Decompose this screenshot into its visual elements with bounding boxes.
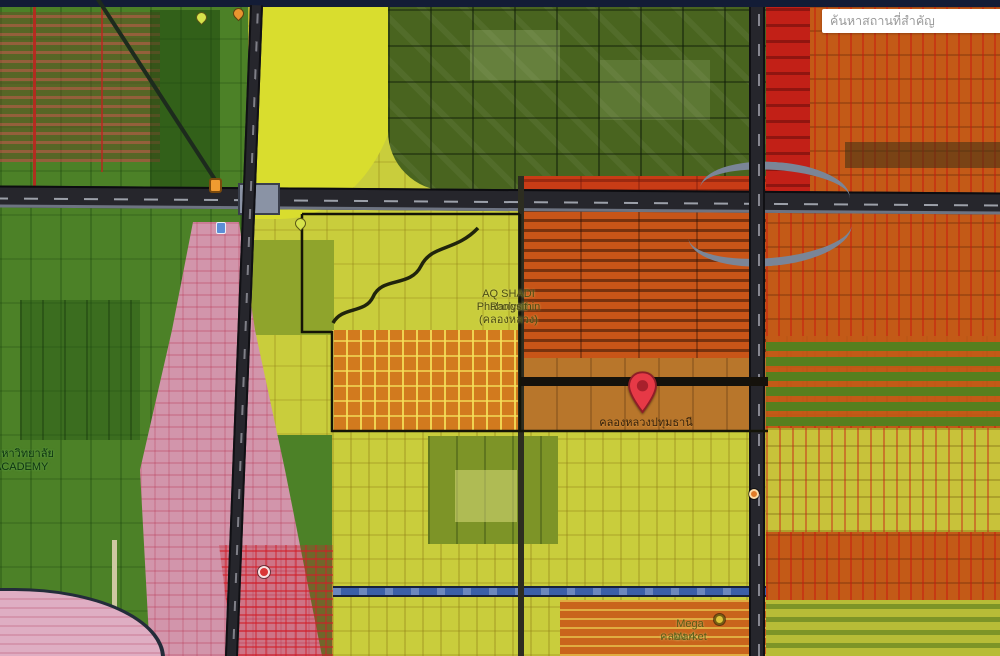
search-input[interactable] xyxy=(822,9,1000,33)
window-top-strip xyxy=(0,0,1000,7)
right-green-rows xyxy=(766,336,1000,426)
orange-subdivision-grid xyxy=(332,330,522,432)
pin-label: คลองหลวงปทุมธานี xyxy=(566,413,726,431)
road-vertical-mid xyxy=(518,176,524,656)
poi-dot-red-icon[interactable] xyxy=(258,566,270,578)
mega-market-label: Mega Market คลอง 4 xyxy=(600,618,720,631)
right-dark-band xyxy=(845,142,1000,168)
road-vertical-east xyxy=(749,7,765,656)
olive-parcel-inner xyxy=(455,470,517,522)
poi-dot-yellow-icon[interactable] xyxy=(714,614,725,625)
olive-patch xyxy=(252,240,334,335)
road-shield-marker-icon[interactable] xyxy=(209,178,222,193)
farm-plots-red-patch xyxy=(0,12,160,162)
destination-pin-icon[interactable] xyxy=(626,371,659,414)
mega-label-line2: คลอง 4 xyxy=(660,631,695,644)
poi-dot-orange-icon[interactable] xyxy=(749,489,759,499)
right-yellow-strip xyxy=(766,428,1000,532)
campus-building-block xyxy=(470,30,560,80)
parcel-red-line-2 xyxy=(101,7,103,172)
water-canal xyxy=(333,586,768,597)
dark-green-patch-2 xyxy=(20,300,140,440)
campus-building-block-2 xyxy=(600,60,710,120)
project-label: AQ SHADI Phaholyothin Rangsit (คลองหลวง) xyxy=(396,288,546,301)
project-label-line2: Rangsit (คลองหลวง) xyxy=(471,301,546,327)
academy-label-line1: มหาวิทยาลัย xyxy=(0,448,54,461)
academy-label-line2: ACADEMY xyxy=(0,461,48,474)
poi-marker-blue-icon[interactable] xyxy=(216,222,226,234)
right-bottom-rows xyxy=(766,600,1000,656)
map-canvas[interactable]: AQ SHADI Phaholyothin Rangsit (คลองหลวง)… xyxy=(0,0,1000,656)
parcel-red-line xyxy=(33,7,36,202)
